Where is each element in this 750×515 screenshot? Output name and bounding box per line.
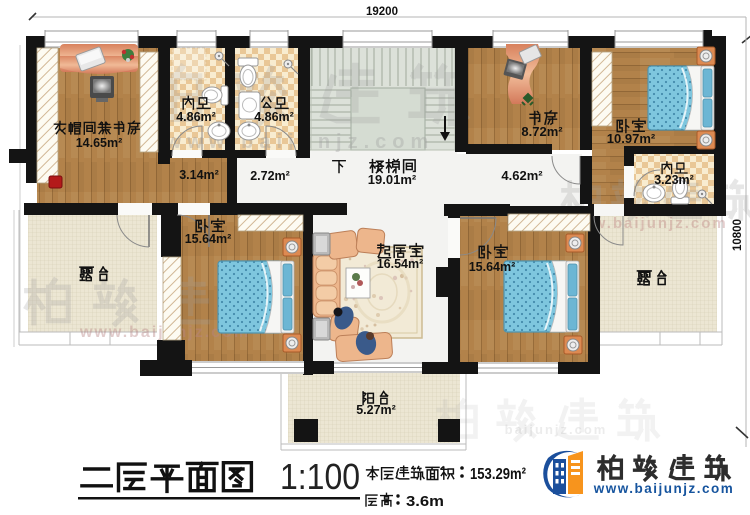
svg-text:15.64m²: 15.64m² <box>469 260 516 274</box>
svg-text:15.64m²: 15.64m² <box>185 232 232 246</box>
svg-text:3.23m²: 3.23m² <box>654 173 694 187</box>
svg-text:10.97m²: 10.97m² <box>607 131 656 146</box>
svg-text:10800: 10800 <box>732 219 744 251</box>
svg-text:3.14m²: 3.14m² <box>179 168 219 182</box>
svg-text:4.86m²: 4.86m² <box>254 110 294 124</box>
svg-text:4.62m²: 4.62m² <box>501 168 543 183</box>
svg-text:8.72m²: 8.72m² <box>521 124 563 139</box>
svg-text:153.29m²: 153.29m² <box>470 466 526 483</box>
svg-text:3.6m: 3.6m <box>406 493 444 510</box>
svg-text:2.72m²: 2.72m² <box>250 169 290 183</box>
svg-text:baijunjz.com: baijunjz.com <box>505 422 608 437</box>
svg-text:14.65m²: 14.65m² <box>76 136 123 150</box>
svg-text:1:100: 1:100 <box>280 456 360 497</box>
svg-text:5.27m²: 5.27m² <box>356 403 396 417</box>
svg-text:19200: 19200 <box>366 6 398 18</box>
svg-text:4.86m²: 4.86m² <box>176 110 216 124</box>
svg-text:www.baijunjz.com: www.baijunjz.com <box>593 481 735 496</box>
svg-text:16.54m²: 16.54m² <box>377 257 424 271</box>
svg-text:19.01m²: 19.01m² <box>368 172 417 187</box>
